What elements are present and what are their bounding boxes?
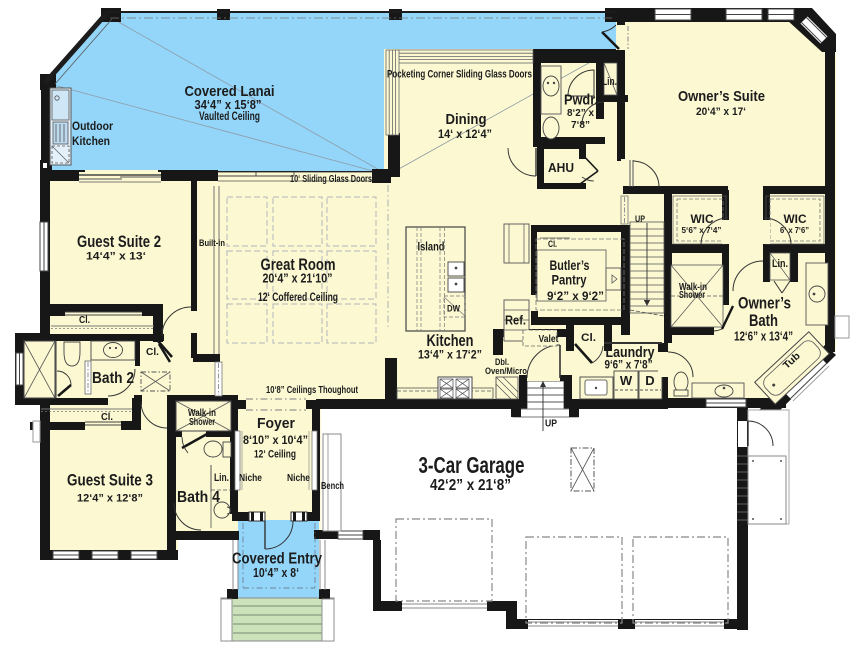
svg-text:W: W bbox=[620, 373, 633, 388]
svg-text:Cl.: Cl. bbox=[101, 411, 113, 423]
svg-text:6‘ x 7‘6”: 6‘ x 7‘6” bbox=[780, 225, 809, 235]
svg-text:Niche: Niche bbox=[287, 473, 310, 484]
svg-text:10‘ Sliding Glass Doors: 10‘ Sliding Glass Doors bbox=[290, 173, 372, 185]
svg-text:Cl.: Cl. bbox=[146, 346, 159, 358]
svg-text:Built-in: Built-in bbox=[199, 238, 225, 248]
svg-text:Valet: Valet bbox=[539, 334, 560, 345]
svg-text:14‘4” x 13‘: 14‘4” x 13‘ bbox=[86, 251, 146, 263]
svg-text:Lin.: Lin. bbox=[214, 472, 229, 484]
svg-text:Lin.: Lin. bbox=[602, 76, 617, 88]
svg-text:Ref.: Ref. bbox=[505, 314, 526, 328]
svg-text:12‘ Coffered Ceiling: 12‘ Coffered Ceiling bbox=[258, 292, 338, 304]
svg-text:Dining: Dining bbox=[446, 111, 487, 128]
svg-text:DW: DW bbox=[447, 304, 460, 315]
svg-text:Owner’s: Owner’s bbox=[738, 295, 791, 313]
svg-text:34‘4” x 15‘8”: 34‘4” x 15‘8” bbox=[195, 97, 262, 112]
svg-text:9‘6” x 7‘8”: 9‘6” x 7‘8” bbox=[605, 358, 653, 372]
svg-text:Kitchen: Kitchen bbox=[72, 134, 110, 148]
svg-text:Bath: Bath bbox=[749, 312, 778, 330]
svg-text:12‘ Ceiling: 12‘ Ceiling bbox=[254, 449, 296, 461]
svg-text:Vaulted Ceiling: Vaulted Ceiling bbox=[199, 111, 260, 123]
svg-text:Foyer: Foyer bbox=[257, 415, 295, 432]
svg-text:Cl.: Cl. bbox=[79, 314, 90, 326]
svg-text:10‘4” x 8‘: 10‘4” x 8‘ bbox=[253, 566, 299, 580]
svg-text:Niche: Niche bbox=[239, 473, 262, 484]
svg-text:Cl.: Cl. bbox=[581, 332, 596, 344]
svg-text:20‘4” x 17‘: 20‘4” x 17‘ bbox=[696, 106, 746, 118]
svg-text:8‘10” x 10‘4”: 8‘10” x 10‘4” bbox=[243, 433, 308, 447]
svg-text:Pantry: Pantry bbox=[552, 272, 587, 288]
svg-text:Bath 2: Bath 2 bbox=[92, 370, 134, 387]
svg-text:5‘6” x 7‘4”: 5‘6” x 7‘4” bbox=[682, 225, 722, 235]
svg-text:UP: UP bbox=[545, 418, 557, 430]
svg-text:42‘2” x 21‘8”: 42‘2” x 21‘8” bbox=[430, 477, 511, 494]
svg-text:Bath 4: Bath 4 bbox=[177, 489, 220, 506]
svg-text:14‘ x 12‘4”: 14‘ x 12‘4” bbox=[438, 127, 492, 141]
svg-text:Covered Entry: Covered Entry bbox=[232, 551, 322, 568]
svg-text:8‘2” x: 8‘2” x bbox=[567, 107, 594, 119]
svg-text:3-Car Garage: 3-Car Garage bbox=[419, 452, 525, 478]
svg-text:20‘4” x 21‘10”: 20‘4” x 21‘10” bbox=[263, 271, 333, 286]
svg-text:Lin.: Lin. bbox=[772, 258, 788, 270]
svg-text:AHU: AHU bbox=[548, 160, 574, 175]
svg-text:Cl.: Cl. bbox=[548, 239, 557, 249]
svg-text:Outdoor: Outdoor bbox=[72, 119, 113, 133]
svg-text:9‘2” x 9‘2”: 9‘2” x 9‘2” bbox=[547, 289, 604, 303]
svg-text:Guest Suite 3: Guest Suite 3 bbox=[67, 471, 153, 490]
svg-text:Pocketing Corner Sliding Glass: Pocketing Corner Sliding Glass Doors bbox=[387, 69, 532, 81]
svg-text:D: D bbox=[645, 373, 654, 388]
svg-text:Island: Island bbox=[418, 240, 445, 254]
svg-text:Bench: Bench bbox=[321, 481, 344, 492]
svg-text:7‘8”: 7‘8” bbox=[571, 119, 590, 131]
svg-text:12‘4” x 12‘8”: 12‘4” x 12‘8” bbox=[77, 493, 143, 505]
svg-text:Shower: Shower bbox=[189, 417, 215, 428]
svg-text:Guest Suite 2: Guest Suite 2 bbox=[77, 232, 161, 251]
svg-text:12‘6” x 13‘4”: 12‘6” x 13‘4” bbox=[734, 329, 793, 344]
svg-text:Owner’s Suite: Owner’s Suite bbox=[678, 88, 765, 105]
svg-text:Oven/Micro: Oven/Micro bbox=[485, 366, 527, 376]
svg-text:10‘8” Ceilings Thoughout: 10‘8” Ceilings Thoughout bbox=[266, 384, 358, 396]
svg-text:UP: UP bbox=[635, 214, 645, 225]
svg-text:13‘4” x 17‘2”: 13‘4” x 17‘2” bbox=[418, 348, 482, 362]
svg-text:Shower: Shower bbox=[679, 290, 705, 301]
